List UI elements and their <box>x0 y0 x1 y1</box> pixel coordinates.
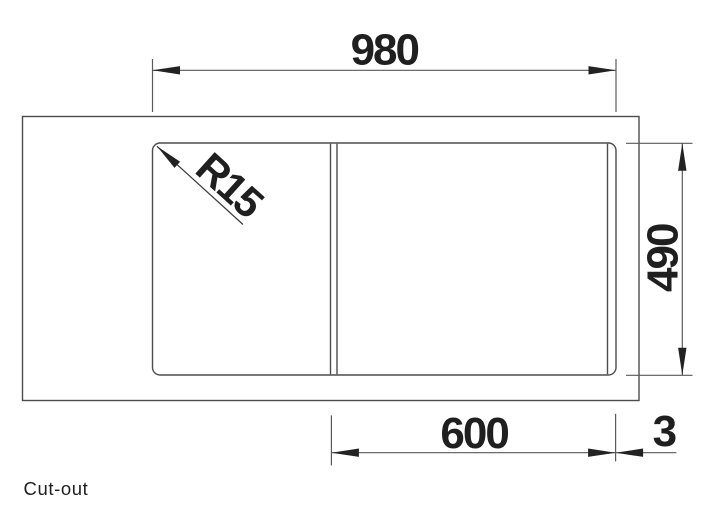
svg-text:490: 490 <box>639 224 688 292</box>
svg-text:3: 3 <box>653 407 676 456</box>
svg-text:980: 980 <box>351 26 419 75</box>
svg-text:Cut-out: Cut-out <box>24 478 89 499</box>
svg-text:600: 600 <box>440 409 508 458</box>
svg-text:R15: R15 <box>187 143 272 227</box>
